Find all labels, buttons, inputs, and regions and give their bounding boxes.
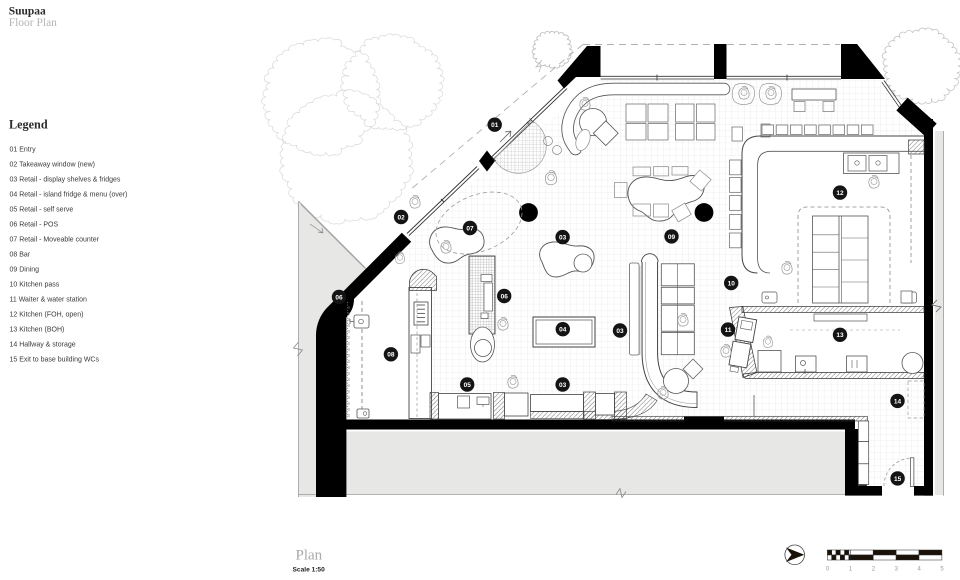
svg-text:Legend: Legend bbox=[9, 118, 48, 132]
svg-text:10 Kitchen pass: 10 Kitchen pass bbox=[10, 282, 60, 289]
svg-text:07 Retail - Moveable counter: 07 Retail - Moveable counter bbox=[10, 236, 100, 243]
svg-text:14 Hallway & storage: 14 Hallway & storage bbox=[10, 342, 76, 349]
svg-text:11: 11 bbox=[725, 327, 732, 334]
svg-text:10: 10 bbox=[728, 280, 736, 287]
svg-text:13 Kitchen (BOH): 13 Kitchen (BOH) bbox=[10, 327, 65, 334]
svg-text:09 Dining: 09 Dining bbox=[10, 267, 40, 274]
svg-text:01: 01 bbox=[491, 122, 499, 129]
svg-text:15: 15 bbox=[894, 476, 902, 483]
svg-text:06: 06 bbox=[335, 294, 343, 301]
svg-text:03: 03 bbox=[559, 382, 567, 389]
svg-text:05: 05 bbox=[464, 382, 472, 389]
svg-text:02: 02 bbox=[397, 214, 405, 221]
svg-text:03: 03 bbox=[616, 328, 624, 335]
svg-text:15 Exit to base building WCs: 15 Exit to base building WCs bbox=[10, 357, 100, 364]
svg-text:03: 03 bbox=[559, 235, 567, 242]
svg-text:07: 07 bbox=[466, 225, 474, 232]
svg-text:Plan: Plan bbox=[296, 548, 323, 564]
svg-text:08: 08 bbox=[387, 352, 395, 359]
svg-text:04 Retail - island fridge & me: 04 Retail - island fridge & menu (over) bbox=[10, 191, 128, 198]
svg-text:01 Entry: 01 Entry bbox=[10, 146, 37, 153]
svg-text:09: 09 bbox=[668, 234, 676, 241]
svg-text:14: 14 bbox=[894, 398, 902, 405]
svg-text:12: 12 bbox=[836, 190, 844, 197]
svg-text:Scale 1:50: Scale 1:50 bbox=[293, 567, 326, 574]
svg-text:Suupaa: Suupaa bbox=[9, 5, 46, 17]
svg-text:04: 04 bbox=[559, 327, 567, 334]
svg-text:05 Retail - self serve: 05 Retail - self serve bbox=[10, 206, 74, 213]
svg-text:11 Waiter & water station: 11 Waiter & water station bbox=[10, 297, 88, 304]
svg-text:08 Bar: 08 Bar bbox=[10, 251, 31, 258]
svg-text:Floor Plan: Floor Plan bbox=[9, 17, 57, 29]
svg-text:03 Retail - display shelves &: 03 Retail - display shelves & fridges bbox=[10, 176, 121, 183]
svg-text:02 Takeaway window (new): 02 Takeaway window (new) bbox=[10, 161, 95, 168]
svg-text:12 Kitchen (FOH, open): 12 Kitchen (FOH, open) bbox=[10, 312, 84, 319]
svg-text:06: 06 bbox=[501, 293, 509, 300]
svg-text:13: 13 bbox=[836, 332, 844, 339]
svg-text:06 Retail - POS: 06 Retail - POS bbox=[10, 221, 59, 228]
